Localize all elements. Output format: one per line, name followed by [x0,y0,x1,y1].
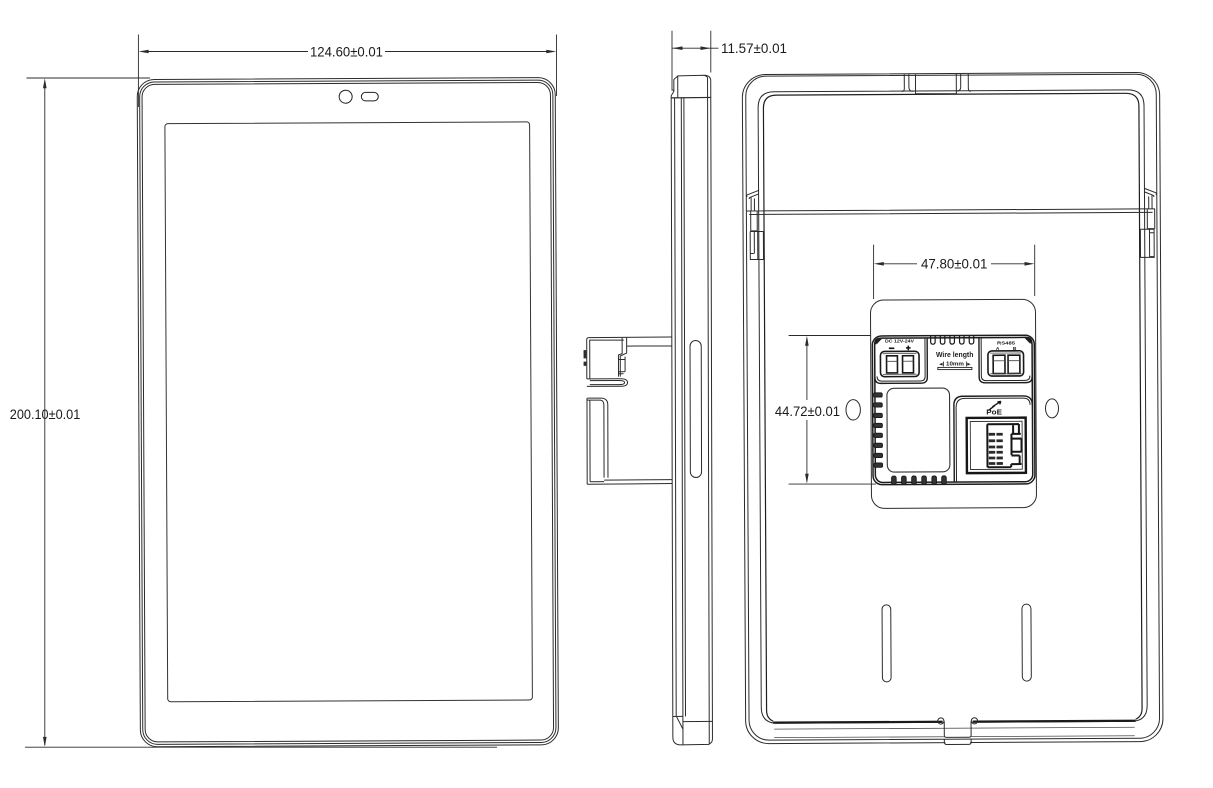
svg-text:A: A [996,346,1000,352]
svg-text:DC 12V-24V: DC 12V-24V [885,339,915,344]
svg-text:PoE: PoE [986,408,1002,417]
svg-text:B: B [1013,346,1017,352]
svg-text:47.80±0.01: 47.80±0.01 [921,256,988,272]
svg-text:124.60±0.01: 124.60±0.01 [310,43,383,59]
svg-text:200.10±0.01: 200.10±0.01 [10,406,81,422]
svg-text:RS485: RS485 [997,340,1016,345]
svg-text:44.72±0.01: 44.72±0.01 [775,403,840,419]
svg-text:Wire length: Wire length [936,350,974,359]
svg-text:◂| 10mm |▸: ◂| 10mm |▸ [938,361,971,367]
svg-text:11.57±0.01: 11.57±0.01 [721,40,787,56]
